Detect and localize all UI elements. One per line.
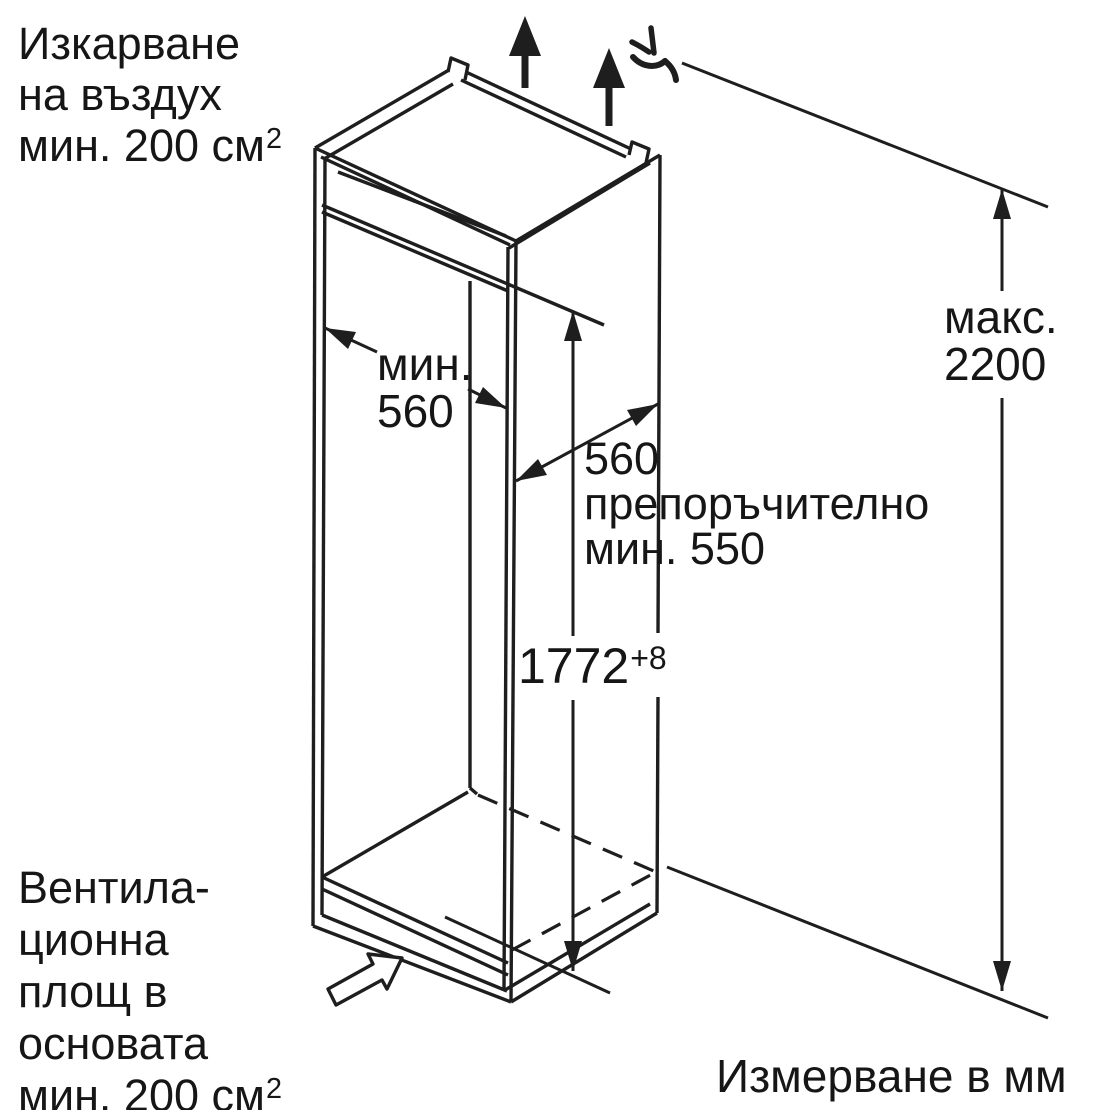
ventilation-area-label: Вентила- ционна площ в основата мин. 200…: [18, 862, 282, 1110]
air-outlet-label: Изкарване на въздух мин. 200 см2: [18, 18, 282, 178]
air-gap-squiggle-icon: [632, 28, 676, 80]
dimension-min-560-word: мин.: [377, 341, 473, 388]
dimension-max-word: макс.: [944, 294, 1058, 341]
air-outlet-line2: на въздух: [18, 69, 282, 120]
air-outlet-line3: мин. 200 см2: [18, 120, 282, 178]
ventilation-line2: ционна: [18, 914, 282, 966]
dimension-min-560-value: 560: [377, 388, 473, 435]
dimension-max-label: макс. 2200: [944, 294, 1058, 388]
ventilation-line5: мин. 200 см2: [18, 1070, 282, 1110]
dimension-min-560-label: мин. 560: [377, 341, 473, 435]
dimension-height-value: 1772: [518, 638, 629, 694]
superscript-squared: 2: [266, 123, 282, 155]
dimension-max-value: 2200: [944, 341, 1058, 388]
dimension-depth-label: 560 препоръчително мин. 550: [584, 436, 929, 571]
ventilation-line4: основата: [18, 1018, 282, 1070]
dimension-height-label: 1772+8: [518, 638, 667, 695]
ventilation-line3: площ в: [18, 966, 282, 1018]
dimension-height-tolerance: +8: [630, 640, 666, 676]
dimension-depth-min: мин. 550: [584, 526, 929, 571]
ventilation-inflow-arrow-icon: [328, 954, 402, 1005]
air-outlet-line1: Изкарване: [18, 18, 282, 69]
superscript-squared: 2: [266, 1073, 282, 1105]
ventilation-line1: Вентила-: [18, 862, 282, 914]
diagram-canvas: Изкарване на въздух мин. 200 см2 мин. 56…: [0, 0, 1110, 1110]
dimension-depth-value: 560: [584, 436, 929, 481]
units-note: Измерване в мм: [716, 1050, 1067, 1102]
dimension-depth-recommended: препоръчително: [584, 481, 929, 526]
